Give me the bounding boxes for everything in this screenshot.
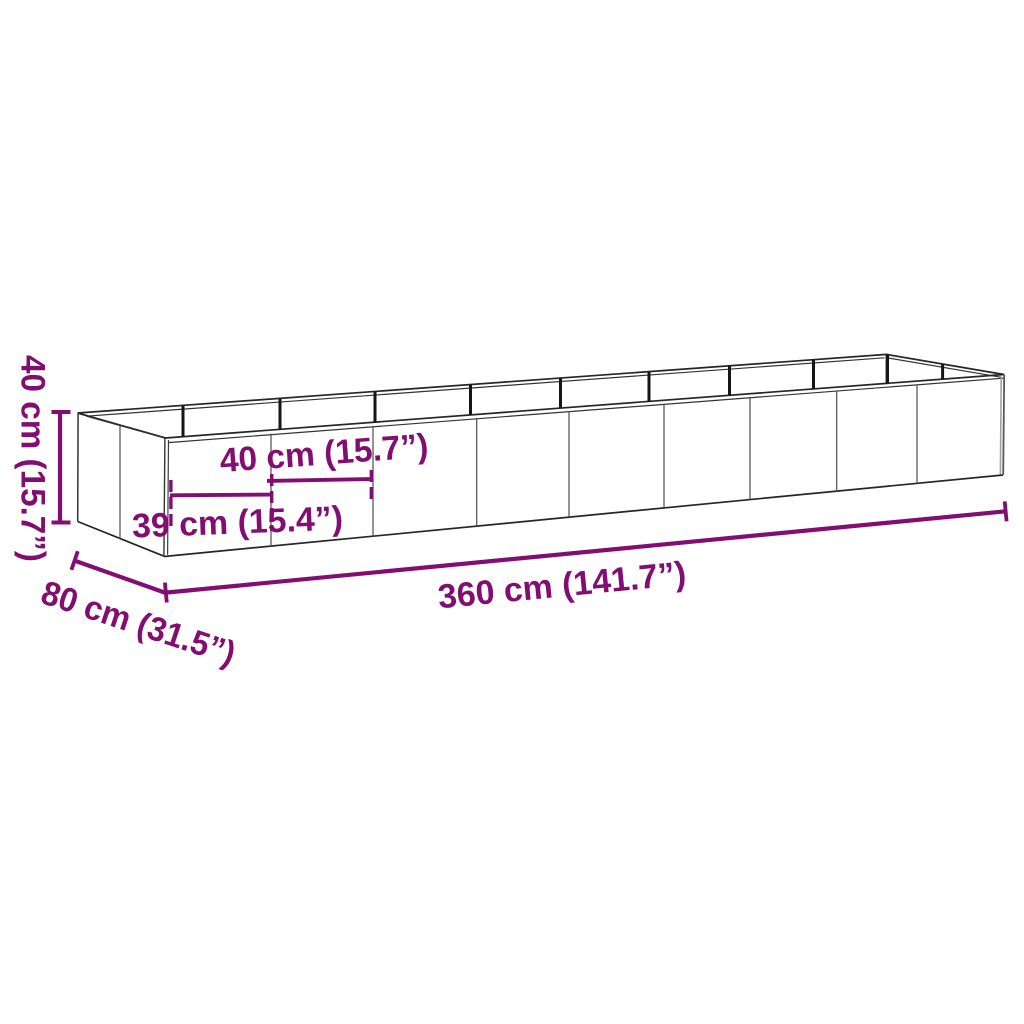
svg-text:39 cm (15.4”): 39 cm (15.4”) — [131, 499, 343, 545]
svg-text:40 cm (15.7”): 40 cm (15.7”) — [218, 427, 429, 480]
svg-text:40 cm (15.7”): 40 cm (15.7”) — [14, 355, 52, 562]
